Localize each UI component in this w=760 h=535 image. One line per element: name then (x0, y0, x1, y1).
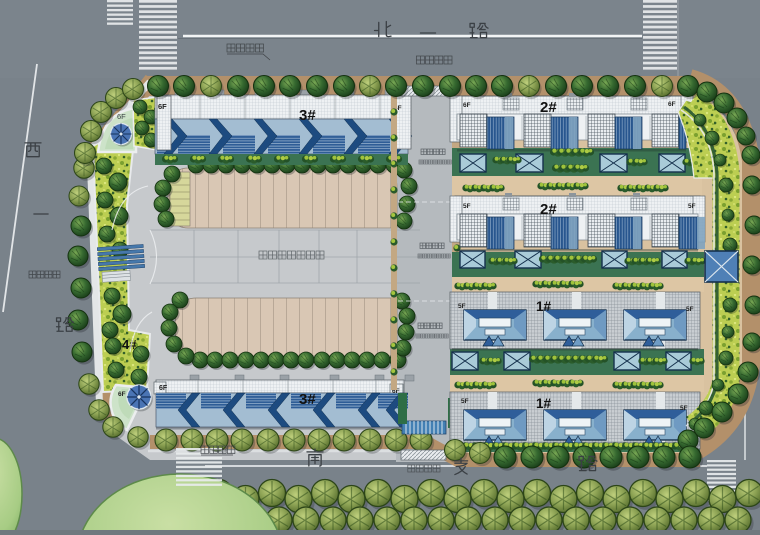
svg-text:1#: 1# (536, 299, 552, 314)
svg-text:5F: 5F (680, 405, 688, 412)
svg-text:3#: 3# (299, 107, 316, 124)
svg-text:5F: 5F (688, 203, 696, 210)
svg-text:4#: 4# (122, 337, 137, 352)
svg-text:6F: 6F (117, 112, 126, 121)
svg-text:6F: 6F (463, 102, 471, 109)
svg-text:6F: 6F (668, 101, 676, 108)
svg-text:2#: 2# (540, 99, 557, 116)
svg-text:6F: 6F (159, 385, 168, 392)
svg-text:2#: 2# (540, 201, 557, 218)
svg-text:5F: 5F (461, 398, 469, 405)
svg-text:5F: 5F (463, 203, 471, 210)
svg-text:3#: 3# (299, 391, 316, 408)
svg-text:5F: 5F (686, 306, 694, 313)
svg-text:6F: 6F (118, 391, 126, 398)
svg-text:1#: 1# (536, 396, 552, 411)
svg-text:6F: 6F (158, 102, 167, 111)
svg-text:5F: 5F (458, 303, 466, 310)
